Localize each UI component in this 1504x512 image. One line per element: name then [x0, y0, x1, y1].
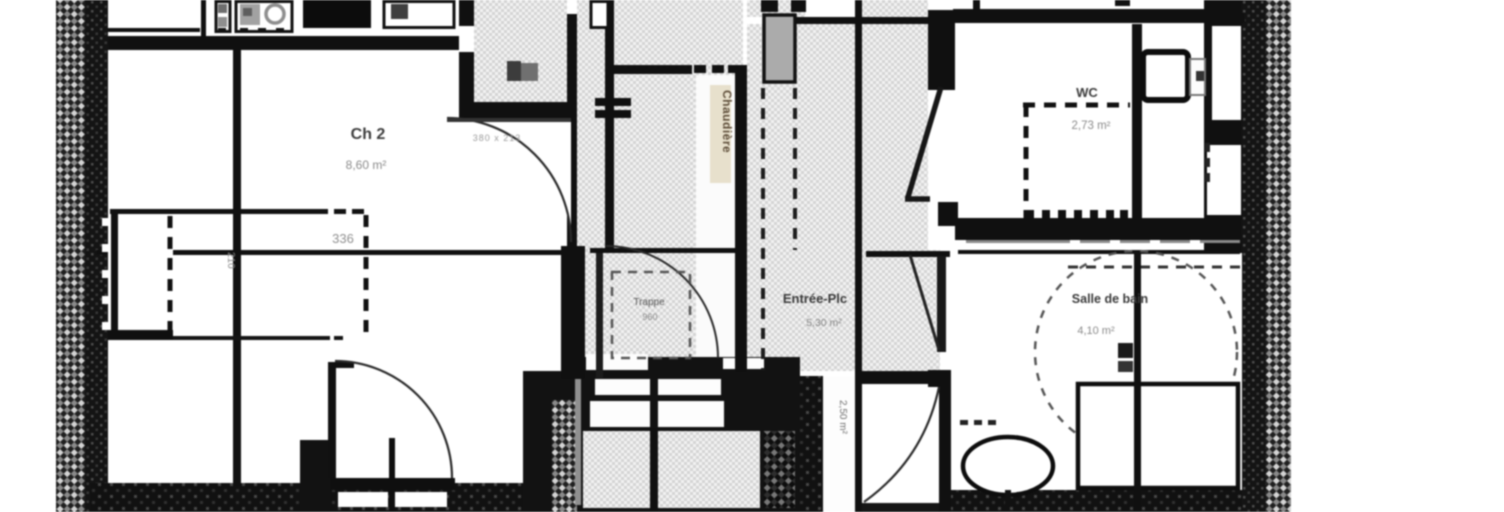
svg-text:5,30 m²: 5,30 m²: [806, 317, 842, 329]
svg-text:960: 960: [642, 312, 657, 322]
svg-text:8,60 m²: 8,60 m²: [346, 158, 387, 172]
svg-text:WC: WC: [1076, 85, 1098, 100]
svg-text:2,50 m²: 2,50 m²: [837, 400, 848, 435]
svg-text:4,10 m²: 4,10 m²: [1077, 325, 1115, 337]
svg-text:210: 210: [225, 252, 236, 269]
svg-text:Entrée-Plc: Entrée-Plc: [783, 291, 847, 306]
svg-text:336: 336: [332, 231, 354, 246]
svg-text:Trappe: Trappe: [633, 297, 665, 308]
svg-text:Chaudière: Chaudière: [720, 90, 734, 153]
svg-text:380 x 213: 380 x 213: [473, 133, 522, 143]
svg-text:2,73 m²: 2,73 m²: [1072, 120, 1111, 132]
svg-text:Salle de bain: Salle de bain: [1072, 292, 1148, 306]
svg-text:Ch 2: Ch 2: [351, 126, 386, 143]
